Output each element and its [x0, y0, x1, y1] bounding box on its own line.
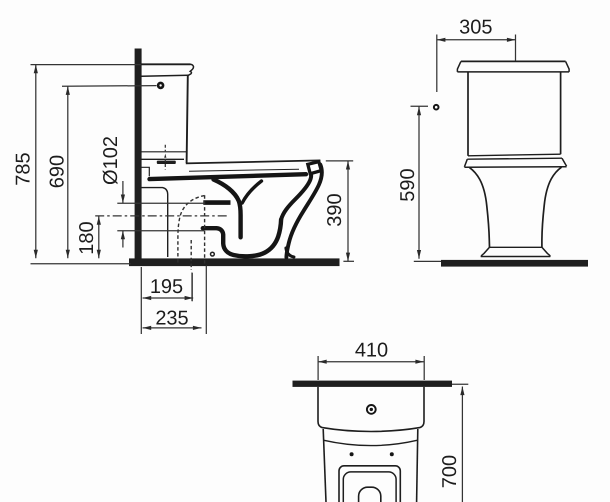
- svg-text:195: 195: [150, 276, 183, 298]
- svg-text:390: 390: [324, 193, 346, 226]
- svg-text:180: 180: [76, 221, 98, 254]
- svg-text:305: 305: [459, 17, 492, 39]
- svg-text:235: 235: [155, 308, 188, 330]
- svg-text:410: 410: [355, 340, 388, 362]
- svg-text:700: 700: [439, 455, 461, 488]
- svg-text:785: 785: [13, 152, 35, 185]
- svg-text:590: 590: [397, 168, 419, 201]
- svg-text:Ø102: Ø102: [100, 136, 122, 185]
- svg-text:690: 690: [47, 155, 69, 188]
